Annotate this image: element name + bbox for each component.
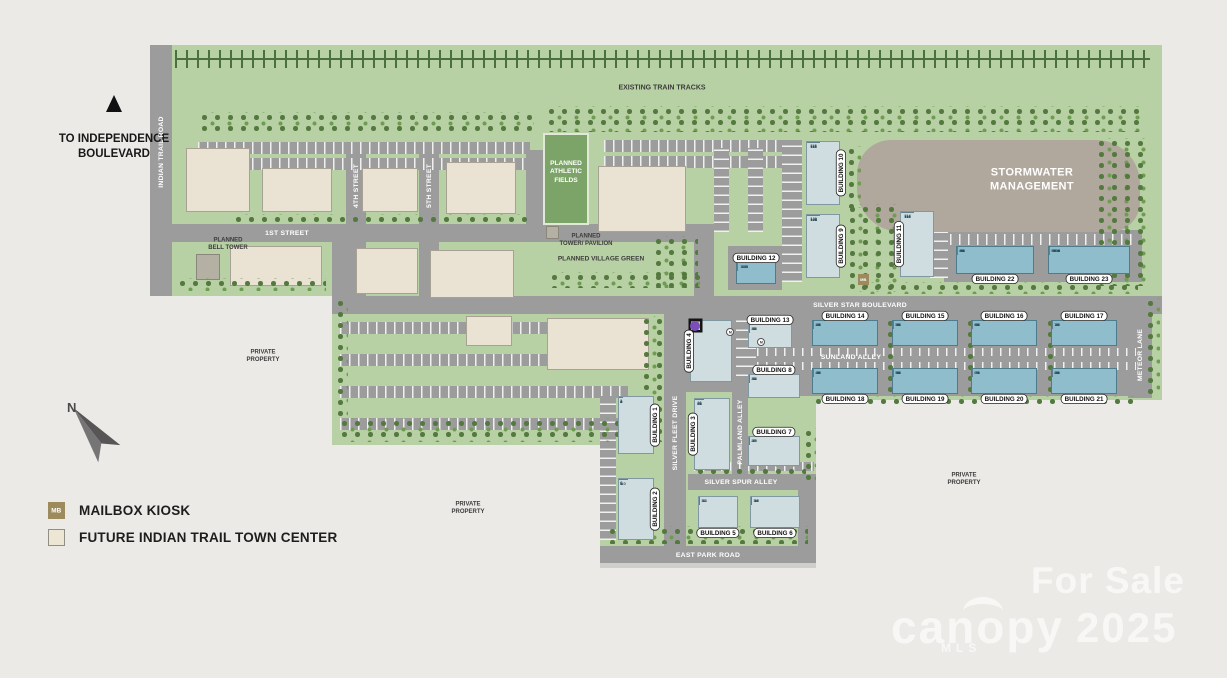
building-5: 111213 [698,496,738,528]
building-6: 14151617 [750,496,800,528]
unit-17: 17 [751,497,761,505]
site-plan-canvas: STORMWATER MANAGEMENTPLANNED ATHLETIC FI… [0,0,1227,678]
building-16-label: BUILDING 16 [981,311,1028,321]
unit-38: 38 [749,325,759,333]
unit-119: 119 [807,142,820,151]
tree-strip [802,428,816,486]
unit-106: 106 [1049,247,1063,255]
building-22: 87888990919293949596 [956,246,1034,274]
building-7: 21201918 [748,436,800,466]
unit-27: 27 [691,321,700,330]
building-4-label: BUILDING 4 [684,329,694,372]
unit-124: 124 [807,215,820,224]
commercial-building [356,248,418,294]
building-12: 107108109 [736,262,776,284]
road-label-sunland-alley: SUNLAND ALLEY [821,353,881,361]
commercial-building [186,148,250,212]
offsite-label: TO INDEPENDENCE BOULEVARD [56,132,172,162]
mailbox-kiosk-marker: MB [858,274,869,285]
building-12-label: BUILDING 12 [733,253,780,263]
unit-56: 56 [893,321,903,329]
legend-item-town-center: FUTURE INDIAN TRAIL TOWN CENTER [48,529,337,546]
canopy-arc-icon [963,597,1003,626]
building-14: 394041424344 [812,320,878,346]
watermark-for-sale: For Sale [1031,560,1185,602]
athletic-fields-label: PLANNED ATHLETIC FIELDS [550,159,582,185]
stormwater-label: STORMWATER MANAGEMENT [990,166,1074,195]
building-2: 678910 [618,478,654,540]
tree-strip [846,204,898,292]
unit-5: 5 [619,397,623,406]
commercial-building [262,168,332,212]
building-20: 697071727374 [971,368,1037,394]
building-1: 12345 [618,396,654,454]
building-13: 35363738 [748,324,792,348]
building-7-label: BUILDING 7 [752,427,795,437]
planned-tower-pavilion-structure [546,226,559,239]
unit-18: 18 [749,437,759,445]
mailbox-point-marker: M [726,328,734,336]
building-5-label: BUILDING 5 [696,528,739,538]
road-label-indian-trail-road: INDIAN TRAIL ROAD [157,116,165,187]
parking-lot [748,148,763,232]
unit-22: 22 [695,399,704,408]
building-6-label: BUILDING 6 [753,528,796,538]
unit-68: 68 [972,321,982,329]
north-arrow-icon [106,95,122,112]
unit-44: 44 [813,321,823,329]
building-11-label: BUILDING 11 [894,221,904,267]
commercial-building [362,168,418,212]
building-21-label: BUILDING 21 [1061,394,1108,404]
road-label-palmland-alley: PALMLAND ALLEY [736,399,744,464]
legend-label: MAILBOX KIOSK [79,503,190,518]
building-16: 636465666768 [971,320,1037,346]
building-17-label: BUILDING 17 [1061,311,1108,321]
unit-50: 50 [813,369,823,377]
road-label-silver-spur-alley: SILVER SPUR ALLEY [704,478,777,486]
building-8: 31323334 [748,374,800,398]
building-20-label: BUILDING 20 [981,394,1028,404]
watermark-mls: MLS [941,641,981,655]
map-label-planned-tower-pavilion: PLANNED TOWER/ PAVILION [559,232,612,248]
legend-item-mailbox-kiosk: MB MAILBOX KIOSK [48,502,337,519]
unit-34: 34 [749,375,759,383]
commercial-building [466,316,512,346]
building-15: 515253545556 [892,320,958,346]
building-1-label: BUILDING 1 [650,403,660,446]
building-18: 454647484950 [812,368,878,394]
building-17: 757677787980 [1051,320,1117,346]
commercial-building [598,166,686,232]
parking-lot [748,348,1136,356]
building-11: 114113112111110 [900,211,934,277]
tree-strip [338,418,636,442]
mb-abbr: MB [52,507,62,514]
building-23: 979899100101102103104105106 [1048,246,1130,274]
mailbox-point-marker: M [757,338,765,346]
compass-n-label: N [67,400,76,415]
unit-110: 110 [901,212,914,221]
tree-strip [845,146,861,208]
compass-north-arrow: N [55,392,139,476]
road-label-4th-street: 4TH STREET [352,164,360,208]
unit-13: 13 [699,497,709,505]
building-19: 575859606162 [892,368,958,394]
unit-80: 80 [1052,321,1062,329]
building-3: 2625242322 [694,398,730,470]
unit-96: 96 [957,247,967,255]
building-9-label: BUILDING 9 [836,224,846,267]
tree-strip [1144,298,1160,398]
building-3-label: BUILDING 3 [688,412,698,455]
tree-strip [232,214,532,223]
road-label-1st-street: 1ST STREET [265,229,309,237]
unit-109: 109 [737,263,751,271]
tree-strip [545,106,1145,132]
planned-bell-tower-structure [196,254,220,280]
tree-strip [198,112,534,132]
map-label-private-property: PRIVATE PROPERTY [451,500,484,516]
parking-lot [340,386,628,398]
building-23-label: BUILDING 23 [1066,274,1113,284]
mailbox-kiosk-icon: MB [48,502,65,519]
road-label-meteor-lane: METEOR LANE [1136,329,1144,381]
map-legend: MB MAILBOX KIOSK FUTURE INDIAN TRAIL TOW… [48,502,337,556]
unit-62: 62 [893,369,903,377]
sidewalk [600,563,816,568]
building-10-label: BUILDING 10 [836,150,846,197]
building-21: 818283848586 [1051,368,1117,394]
building-19-label: BUILDING 19 [902,394,949,404]
commercial-building [547,318,649,370]
road-label-5th-street: 5TH STREET [425,164,433,208]
parking-lot [782,140,802,282]
commercial-building [430,250,514,298]
building-14-label: BUILDING 14 [822,311,869,321]
unit-86: 86 [1052,369,1062,377]
legend-label: FUTURE INDIAN TRAIL TOWN CENTER [79,530,337,545]
road-label-silver-star-boulevard: SILVER STAR BOULEVARD [813,301,907,309]
building-2-label: BUILDING 2 [650,487,660,530]
building-8-label: BUILDING 8 [752,365,795,375]
road-label-silver-fleet-drive: SILVER FLEET DRIVE [671,396,679,471]
unit-74: 74 [972,369,982,377]
commercial-building [446,162,516,214]
tree-strip [176,278,326,291]
unit-10: 10 [619,479,628,488]
train-tracks-rail [175,58,1150,60]
watermark-year: 2025 [1076,604,1177,652]
road-label-east-park-road: EAST PARK ROAD [676,551,740,559]
building-22-label: BUILDING 22 [972,274,1019,284]
map-label-planned-village-green: PLANNED VILLAGE GREEN [558,255,644,263]
town-center-swatch-icon [48,529,65,546]
map-label-private-property: PRIVATE PROPERTY [947,471,980,487]
road [332,296,1162,314]
map-label-existing-train-tracks: EXISTING TRAIN TRACKS [618,83,705,92]
map-label-private-property: PRIVATE PROPERTY [246,348,279,364]
building-18-label: BUILDING 18 [822,394,869,404]
parking-lot [714,148,729,232]
building-15-label: BUILDING 15 [902,311,949,321]
tree-strip [652,236,698,288]
map-label-planned-bell-tower: PLANNED BELL TOWER [208,236,247,252]
building-13-label: BUILDING 13 [747,315,794,325]
offsite-direction: TO INDEPENDENCE BOULEVARD [56,80,172,177]
tree-strip [334,298,348,422]
